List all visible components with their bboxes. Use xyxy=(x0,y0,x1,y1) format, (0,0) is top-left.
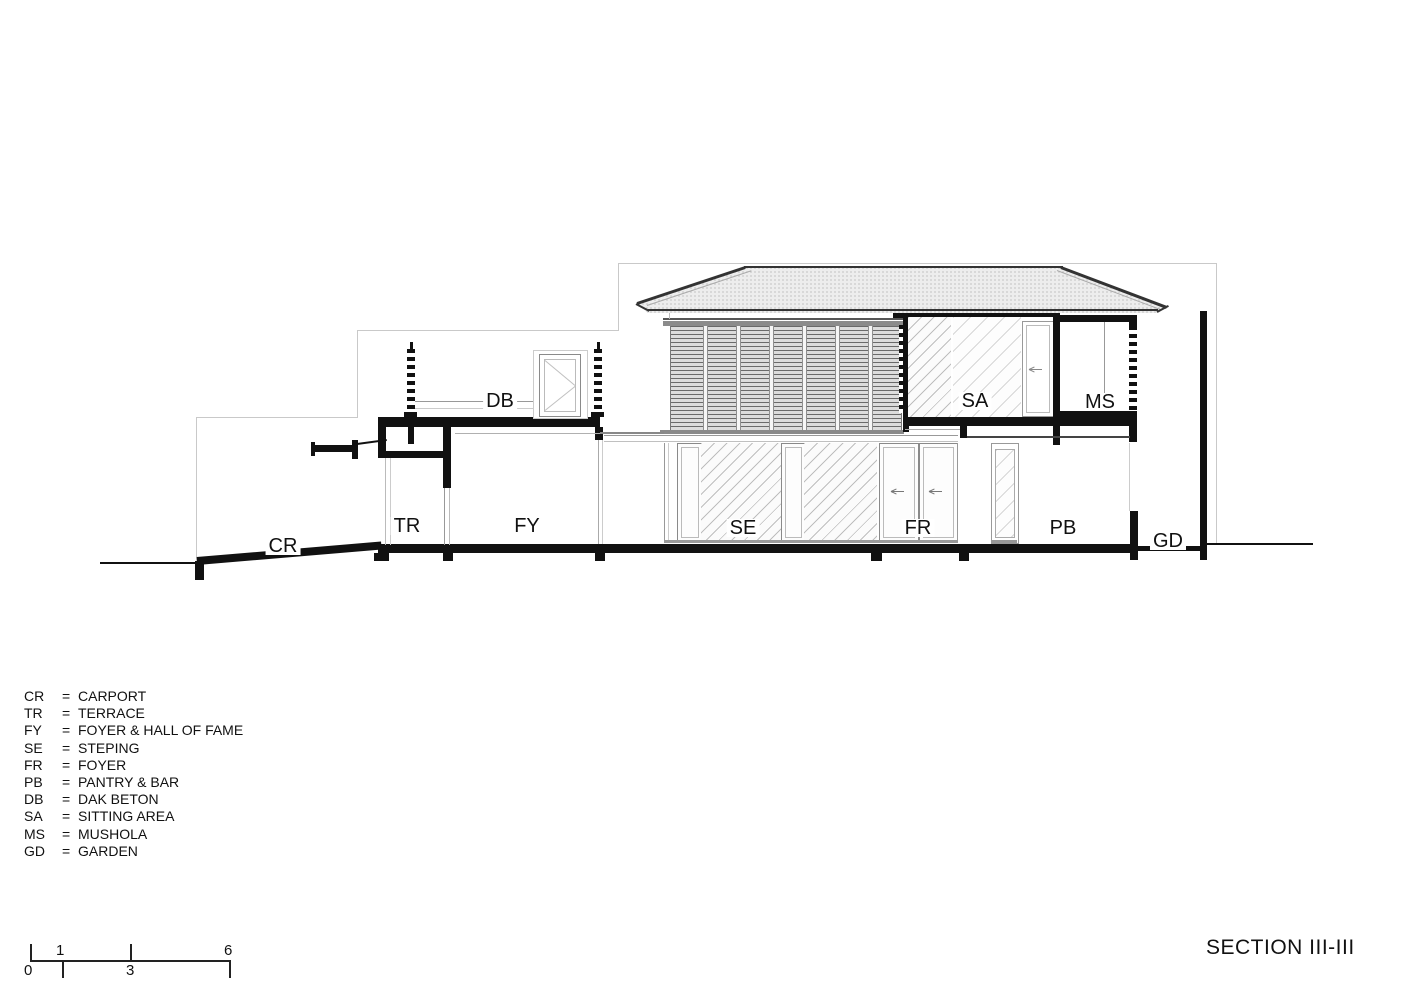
legend-equals: = xyxy=(62,688,78,705)
tr-fy-wall-line xyxy=(449,488,450,545)
scale-tick xyxy=(30,944,32,960)
louver-panel-divider xyxy=(802,326,807,430)
legend-abbr: MS xyxy=(24,826,62,843)
ground-line-right xyxy=(1207,543,1313,545)
se-glass-door-leaf xyxy=(681,447,699,538)
ground-line-left xyxy=(100,562,198,564)
railing-post-stem xyxy=(410,342,413,349)
legend-name: MUSHOLA xyxy=(78,826,147,843)
legend-abbr: FR xyxy=(24,757,62,774)
legend-abbr: SE xyxy=(24,740,62,757)
fr-ceiling-line xyxy=(905,429,960,430)
room-label-fy: FY xyxy=(511,517,543,535)
outline-step1-horizontal xyxy=(196,417,357,418)
legend-name: CARPORT xyxy=(78,688,146,705)
se-frame-left xyxy=(668,443,669,543)
legend-name: FOYER & HALL OF FAME xyxy=(78,722,243,739)
boundary-wall xyxy=(1200,311,1207,560)
canopy-line xyxy=(600,432,664,434)
railing-post-flange xyxy=(591,412,604,417)
legend-name: TERRACE xyxy=(78,705,145,722)
pb-right-wall-line xyxy=(1129,443,1130,511)
legend-row: SE=STEPING xyxy=(24,740,243,757)
se-ceiling-line xyxy=(604,435,958,436)
scale-label-3: 3 xyxy=(126,963,134,978)
legend-row: FY=FOYER & HALL OF FAME xyxy=(24,722,243,739)
fr-pb-wall-stub xyxy=(960,426,967,438)
louver-top-rail xyxy=(663,318,904,326)
louver-bottom-rail xyxy=(660,430,904,434)
fr-frame-right xyxy=(957,443,958,543)
louver-panel-divider xyxy=(703,326,708,430)
pb-window-leaf xyxy=(995,449,1015,538)
louver-panel-divider xyxy=(736,326,741,430)
room-label-ms: MS xyxy=(1082,393,1118,411)
legend-row: MS=MUSHOLA xyxy=(24,826,243,843)
legend-row: FR=FOYER xyxy=(24,757,243,774)
railing-post xyxy=(407,349,415,412)
louver-panel-divider xyxy=(769,326,774,430)
legend-name: SITTING AREA xyxy=(78,808,174,825)
legend-name: DAK BETON xyxy=(78,791,159,808)
room-label-pb: PB xyxy=(1047,519,1080,537)
glazing-bottom-rail xyxy=(664,540,958,543)
roof-underside xyxy=(648,309,1158,311)
legend-equals: = xyxy=(62,722,78,739)
se-glass-door-leaf xyxy=(785,447,802,538)
section-drawing-page: CR TR FY SE FR PB GD DB SA MS CR=CARPORT… xyxy=(0,0,1414,1000)
scale-tick xyxy=(130,944,132,960)
scale-label-6: 6 xyxy=(224,943,232,958)
tr-fy-wall-line xyxy=(444,488,445,545)
legend-row: SA=SITTING AREA xyxy=(24,808,243,825)
legend-abbr: FY xyxy=(24,722,62,739)
legend-name: STEPING xyxy=(78,740,139,757)
upper-floor-slab xyxy=(904,417,1137,426)
legend-equals: = xyxy=(62,808,78,825)
room-label-sa: SA xyxy=(959,392,992,410)
tr-box-right-wall xyxy=(443,427,451,488)
foundation-nib xyxy=(595,553,605,561)
legend-abbr: DB xyxy=(24,791,62,808)
legend-row: PB=PANTRY & BAR xyxy=(24,774,243,791)
ms-left-wall xyxy=(1053,310,1060,445)
room-label-gd: GD xyxy=(1150,532,1186,550)
scale-label-1: 1 xyxy=(56,943,64,958)
legend-equals: = xyxy=(62,774,78,791)
sa-glass-panel xyxy=(908,317,951,418)
outline-right-vertical xyxy=(1216,263,1217,545)
louver-panel-divider xyxy=(835,326,840,430)
ms-right-mullion-top xyxy=(1129,315,1137,326)
legend: CR=CARPORT TR=TERRACE FY=FOYER & HALL OF… xyxy=(24,688,243,860)
pb-ceiling-line xyxy=(967,436,1130,438)
roof-body xyxy=(637,266,1168,314)
legend-row: GD=GARDEN xyxy=(24,843,243,860)
outline-left-vertical xyxy=(196,417,197,563)
louver-panel-divider xyxy=(868,326,873,430)
se-glass-wall xyxy=(804,443,877,543)
tr-left-wall-line xyxy=(385,458,386,545)
room-label-fr: FR xyxy=(902,519,935,537)
legend-abbr: CR xyxy=(24,688,62,705)
fy-right-wall-line xyxy=(598,440,599,544)
legend-equals: = xyxy=(62,791,78,808)
sa-cut-wall-dashes xyxy=(899,325,903,413)
foundation-nib xyxy=(443,553,453,561)
ms-right-mullion-bottom xyxy=(1129,411,1137,442)
railing-post-flange xyxy=(404,412,417,417)
outline-step2-horizontal xyxy=(357,330,618,331)
room-label-db: DB xyxy=(483,392,517,410)
legend-abbr: PB xyxy=(24,774,62,791)
pb-window-sill xyxy=(991,540,1017,543)
se-ceiling-line xyxy=(604,441,958,442)
legend-name: FOYER xyxy=(78,757,126,774)
fy-right-wall-line xyxy=(602,440,603,544)
outline-top-horizontal xyxy=(618,263,1217,264)
drawing-title: SECTION III-III xyxy=(1206,936,1355,960)
foundation-nib xyxy=(374,553,389,561)
legend-abbr: SA xyxy=(24,808,62,825)
legend-name: GARDEN xyxy=(78,843,138,860)
tr-box-bottom xyxy=(378,451,451,458)
legend-row: CR=CARPORT xyxy=(24,688,243,705)
scale-label-0: 0 xyxy=(24,963,32,978)
legend-abbr: GD xyxy=(24,843,62,860)
gate-cap-left xyxy=(311,442,315,456)
room-label-se: SE xyxy=(727,519,760,537)
ramp-footing xyxy=(195,561,204,580)
gate-bar xyxy=(313,445,357,452)
legend-equals: = xyxy=(62,705,78,722)
outline-step3-vertical xyxy=(618,263,619,331)
fy-ceiling-line xyxy=(455,433,600,434)
ms-top-slab xyxy=(1060,315,1133,322)
legend-equals: = xyxy=(62,826,78,843)
legend-name: PANTRY & BAR xyxy=(78,774,179,791)
railing-post xyxy=(594,349,602,412)
garden-post xyxy=(1130,511,1138,560)
legend-abbr: TR xyxy=(24,705,62,722)
legend-equals: = xyxy=(62,740,78,757)
tr-box-post xyxy=(408,427,414,444)
outline-step2-vertical xyxy=(357,330,358,418)
room-label-cr: CR xyxy=(266,537,301,555)
railing-post-stem xyxy=(597,342,600,349)
legend-equals: = xyxy=(62,757,78,774)
scale-tick xyxy=(229,962,231,978)
legend-row: TR=TERRACE xyxy=(24,705,243,722)
roof-ridge xyxy=(744,266,1063,268)
foundation-nib xyxy=(871,553,882,561)
se-frame-left xyxy=(664,443,665,543)
scale-tick xyxy=(62,962,64,978)
ms-right-mullion-dashes xyxy=(1129,326,1137,411)
room-label-tr: TR xyxy=(391,517,424,535)
legend-equals: = xyxy=(62,843,78,860)
floor-slab xyxy=(378,544,1135,553)
legend-row: DB=DAK BETON xyxy=(24,791,243,808)
foundation-nib xyxy=(959,553,969,561)
rear-door-leaf xyxy=(544,359,576,412)
